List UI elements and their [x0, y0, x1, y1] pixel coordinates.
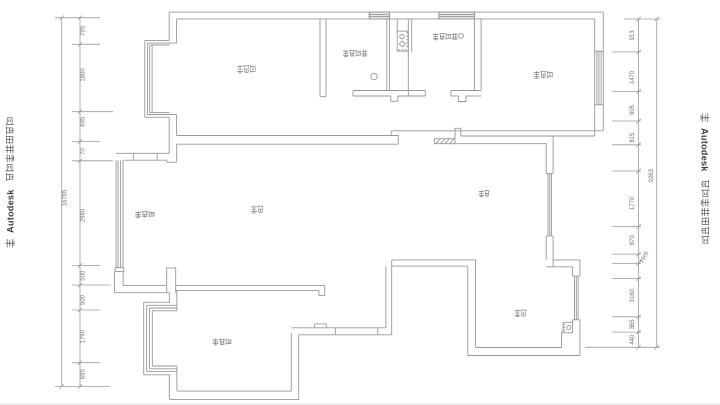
svg-text:500: 500	[81, 270, 87, 281]
svg-text:815: 815	[630, 132, 636, 143]
svg-text:870: 870	[630, 235, 636, 246]
svg-text:695: 695	[81, 369, 87, 380]
svg-text:1470: 1470	[630, 70, 636, 84]
svg-text:440: 440	[630, 334, 636, 345]
svg-text:795: 795	[81, 25, 87, 36]
svg-text:16765: 16765	[62, 189, 68, 206]
svg-text:70: 70	[81, 148, 87, 155]
svg-text:Autodesk: Autodesk	[6, 189, 16, 233]
svg-text:905: 905	[630, 104, 636, 115]
svg-text:9263: 9263	[649, 168, 655, 182]
svg-text:1800: 1800	[81, 68, 87, 82]
svg-text:913: 913	[630, 30, 636, 41]
svg-text:1790: 1790	[81, 329, 87, 343]
svg-text:2980: 2980	[81, 208, 87, 222]
svg-text:Autodesk: Autodesk	[700, 128, 710, 172]
svg-text:500: 500	[81, 294, 87, 305]
svg-text:365: 365	[630, 319, 636, 330]
svg-text:695: 695	[81, 116, 87, 127]
svg-text:1770: 1770	[630, 196, 636, 210]
svg-text:1305: 1305	[639, 251, 651, 265]
svg-text:3180: 3180	[630, 288, 636, 302]
